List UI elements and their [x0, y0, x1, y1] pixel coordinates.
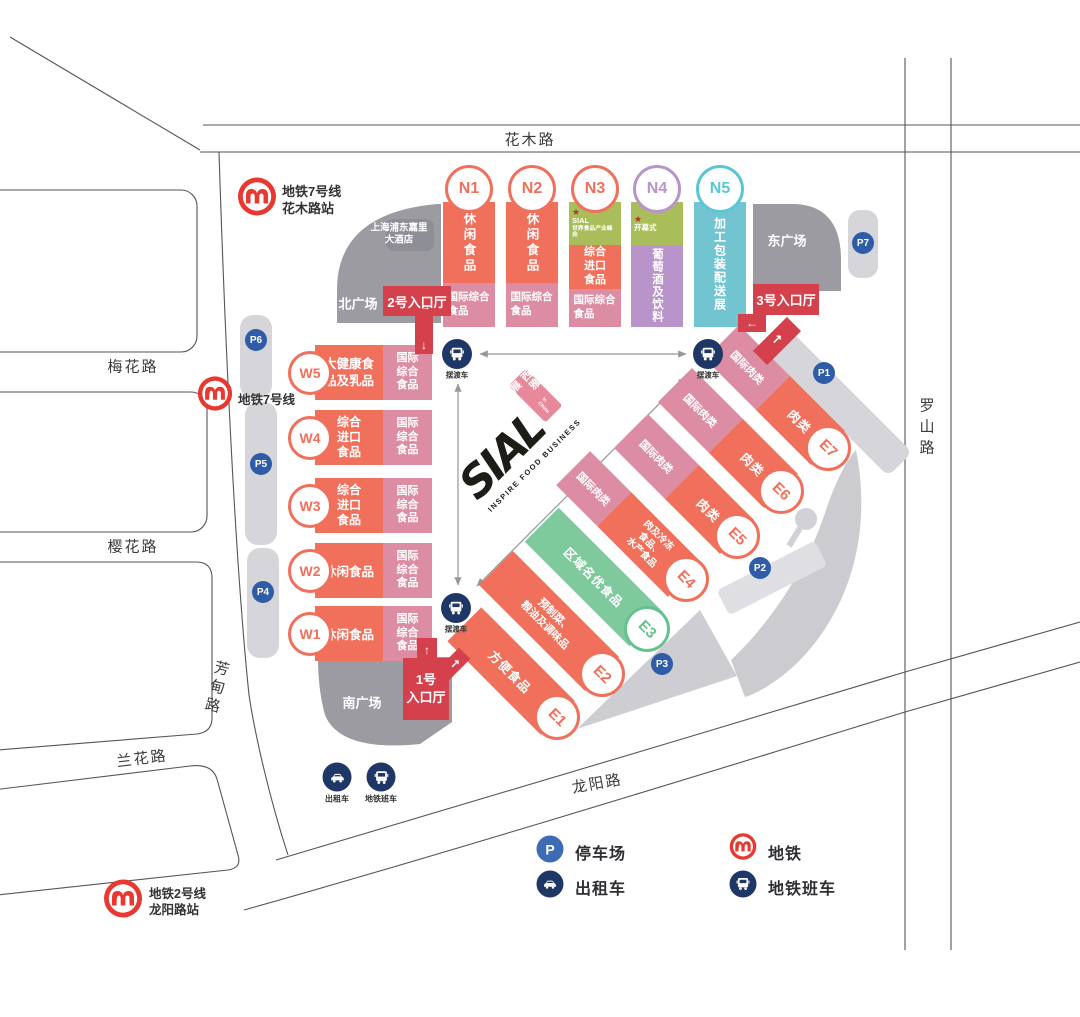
- arrow-left-icon: ←: [746, 316, 758, 330]
- entrance-3-hall: 3号入口厅: [753, 284, 819, 315]
- city-block-3: [0, 562, 212, 753]
- metro-station-longyang-label: 地铁2号线 龙阳路站: [149, 886, 206, 919]
- entrance-2-stub: ↓: [415, 316, 433, 354]
- hall-n3-tag-sub: 世界食品产业峰会: [572, 226, 618, 239]
- arrow-up-icon: ↑: [424, 643, 430, 657]
- metro-icon: [237, 177, 277, 222]
- hall-n1-main: 休闲食品: [443, 202, 495, 283]
- metro-station-huamu-label: 地铁7号线 花木路站: [282, 184, 341, 218]
- hall-e3-badge: E3: [624, 606, 670, 652]
- parking-badge-p4: P4: [252, 581, 274, 603]
- shuttle-stop-label: 摆渡车: [446, 370, 469, 381]
- hall-e2-badge: E2: [579, 651, 625, 697]
- legend-parking-label: 停车场: [575, 840, 626, 864]
- legend-taxi-label: 出租车: [575, 875, 626, 899]
- sial-logo-cn-sub: in China: [536, 396, 558, 418]
- hall-n4-main: 葡萄酒及饮料: [631, 245, 683, 327]
- hall-n5: 加工包装配送展: [694, 202, 746, 327]
- parking-strip-p4: [247, 548, 279, 658]
- hall-n3-main: 综合进口食品: [569, 245, 621, 290]
- city-block-2: [0, 392, 207, 532]
- p2-landmark-dot: [795, 508, 817, 530]
- arrow-down-icon: ↓: [421, 338, 427, 352]
- metro-icon: [197, 376, 233, 417]
- hall-w2: 休闲食品 国际综合食品: [315, 543, 432, 598]
- road-label-luoshan: 罗山路: [916, 398, 937, 461]
- hall-w4: 综合进口食品 国际综合食品: [315, 410, 432, 465]
- parking-badge-p5: P5: [250, 453, 272, 475]
- hall-w3: 综合进口食品 国际综合食品: [315, 478, 432, 533]
- hall-e7-badge: E7: [805, 425, 851, 471]
- hall-e6-badge: E6: [758, 468, 804, 514]
- south-plaza-label: 南广场: [342, 693, 381, 712]
- hall-w1: 休闲食品 国际综合食品: [315, 606, 432, 661]
- hall-n1-badge: N1: [445, 165, 493, 213]
- legend-metro-shuttle-icon: [730, 871, 757, 898]
- parking-badge-p3: P3: [651, 653, 673, 675]
- east-plaza-label: 东广场: [767, 231, 806, 250]
- hall-n3: ★ SIAL 世界食品产业峰会 综合进口食品 国际综合食品: [569, 202, 621, 327]
- parking-badge-p7: P7: [852, 232, 874, 254]
- road-label-meihua: 梅花路: [107, 356, 158, 377]
- hall-w3-badge: W3: [288, 484, 332, 528]
- hall-n2-main: 休闲食品: [506, 202, 558, 283]
- hall-n5-main: 加工包装配送展: [694, 202, 746, 327]
- hall-n3-badge: N3: [571, 165, 619, 213]
- arrow-right-icon: →: [420, 301, 431, 313]
- legend-metro-label: 地铁: [768, 840, 802, 864]
- hall-n4-badge: N4: [633, 165, 681, 213]
- hall-n4: ★ 开幕式 葡萄酒及饮料: [631, 202, 683, 327]
- city-block-1: [0, 190, 197, 352]
- hall-n2-sub: 国际综合食品: [506, 283, 558, 327]
- hall-w2-badge: W2: [288, 549, 332, 593]
- metro-line7-label: 地铁7号线: [238, 389, 295, 408]
- taxi-label: 出租车: [325, 794, 349, 805]
- hall-n5-badge: N5: [696, 165, 744, 213]
- p2-landmark-stem: [789, 528, 800, 546]
- shuttle-stop-label: 摆渡车: [697, 370, 720, 381]
- arrow-ne-icon: ↗: [450, 657, 460, 671]
- shuttle-bus-icon: [693, 339, 723, 369]
- metro-icon: [103, 879, 143, 924]
- legend-metro-icon: [729, 833, 757, 866]
- hall-w4-badge: W4: [288, 416, 332, 460]
- legend-parking-icon: P: [537, 836, 564, 863]
- hall-w1-badge: W1: [288, 612, 332, 656]
- hall-n3-sub: 国际综合食品: [569, 289, 621, 327]
- shuttle-stop-label: 摆渡车: [445, 624, 468, 635]
- arrow-ne-icon: ↗: [772, 332, 783, 348]
- hall-e4-badge: E4: [663, 556, 709, 602]
- parking-badge-p6: P6: [245, 329, 267, 351]
- north-plaza-label: 北广场: [338, 294, 377, 313]
- road-label-huamu: 花木路: [504, 129, 555, 150]
- metro-shuttle-label: 地铁班车: [365, 794, 397, 805]
- hall-n2: 休闲食品 国际综合食品: [506, 202, 558, 327]
- hall-n2-badge: N2: [508, 165, 556, 213]
- shuttle-bus-icon: [441, 593, 471, 623]
- entrance-2-hall: 2号入口厅: [383, 286, 451, 316]
- hall-w2-sub: 国际综合食品: [383, 543, 432, 598]
- legend-taxi-icon: [537, 871, 564, 898]
- parking-badge-p2: P2: [749, 557, 771, 579]
- hall-w3-sub: 国际综合食品: [383, 478, 432, 533]
- hall-w4-sub: 国际综合食品: [383, 410, 432, 465]
- parking-badge-p1: P1: [813, 362, 835, 384]
- metro-shuttle-icon: [367, 763, 396, 792]
- hall-n4-tag-title: 开幕式: [634, 224, 680, 233]
- venue-map: 北广场 南广场 东广场 上海浦东嘉里 大酒店 休闲食品 国际综合食品 休闲食品 …: [0, 0, 1080, 1017]
- entrance-3-stub: ←: [738, 314, 766, 332]
- road-label-yinghua: 樱花路: [107, 536, 158, 557]
- road-corner-diagonal: [10, 37, 200, 150]
- taxi-icon: [323, 763, 352, 792]
- hotel-label: 上海浦东嘉里 大酒店: [349, 223, 449, 248]
- parking-strip-p6: [240, 315, 272, 398]
- legend-metro-shuttle-label: 地铁班车: [768, 875, 836, 899]
- shuttle-bus-icon: [442, 339, 472, 369]
- hall-e5-badge: E5: [714, 513, 760, 559]
- hall-e1-badge: E1: [534, 694, 580, 740]
- hall-n3-tag-title: SIAL: [572, 217, 618, 226]
